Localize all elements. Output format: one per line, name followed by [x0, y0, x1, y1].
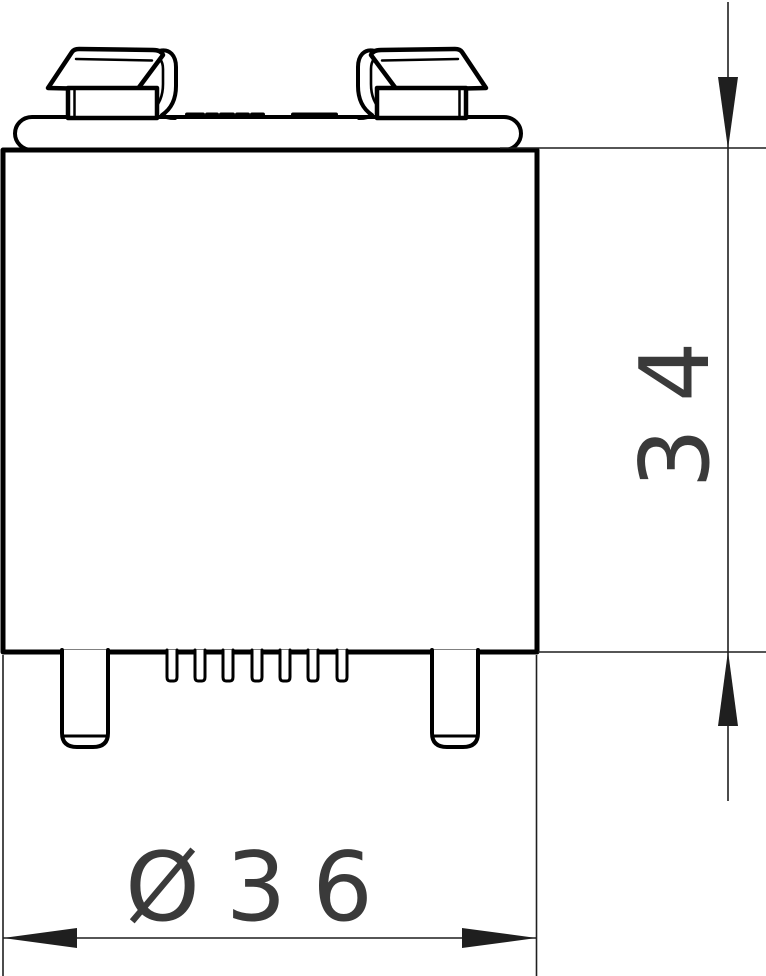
contact-pins — [167, 650, 347, 681]
contact-pin — [337, 650, 347, 681]
terminal-left — [48, 49, 176, 118]
height-dimension-label: 34 — [621, 316, 731, 489]
contact-pin — [280, 650, 290, 681]
diameter-dimension-label: Ø36 — [125, 833, 399, 943]
mounting-leg-left — [62, 650, 108, 747]
arrow-up-icon — [718, 651, 738, 726]
terminal-roof — [48, 49, 163, 90]
relay-side-view-drawing: 34 Ø36 — [0, 0, 766, 976]
mounting-flange — [15, 117, 521, 150]
contact-pin — [308, 650, 318, 681]
terminal-roof-edge-line — [76, 59, 152, 61]
arrow-down-icon — [718, 77, 738, 149]
relay-body — [3, 150, 537, 652]
technical-drawing-canvas: 34 Ø36 — [0, 0, 766, 976]
contact-pin — [195, 650, 205, 681]
mounting-leg-right — [432, 650, 478, 747]
terminal-base — [68, 88, 157, 118]
contact-pin — [223, 650, 233, 681]
arrow-left-icon — [3, 928, 77, 948]
contact-pin — [167, 650, 177, 681]
relay-component — [3, 49, 537, 747]
terminal-right — [358, 49, 486, 118]
contact-pin — [252, 650, 262, 681]
arrow-right-icon — [462, 928, 537, 948]
